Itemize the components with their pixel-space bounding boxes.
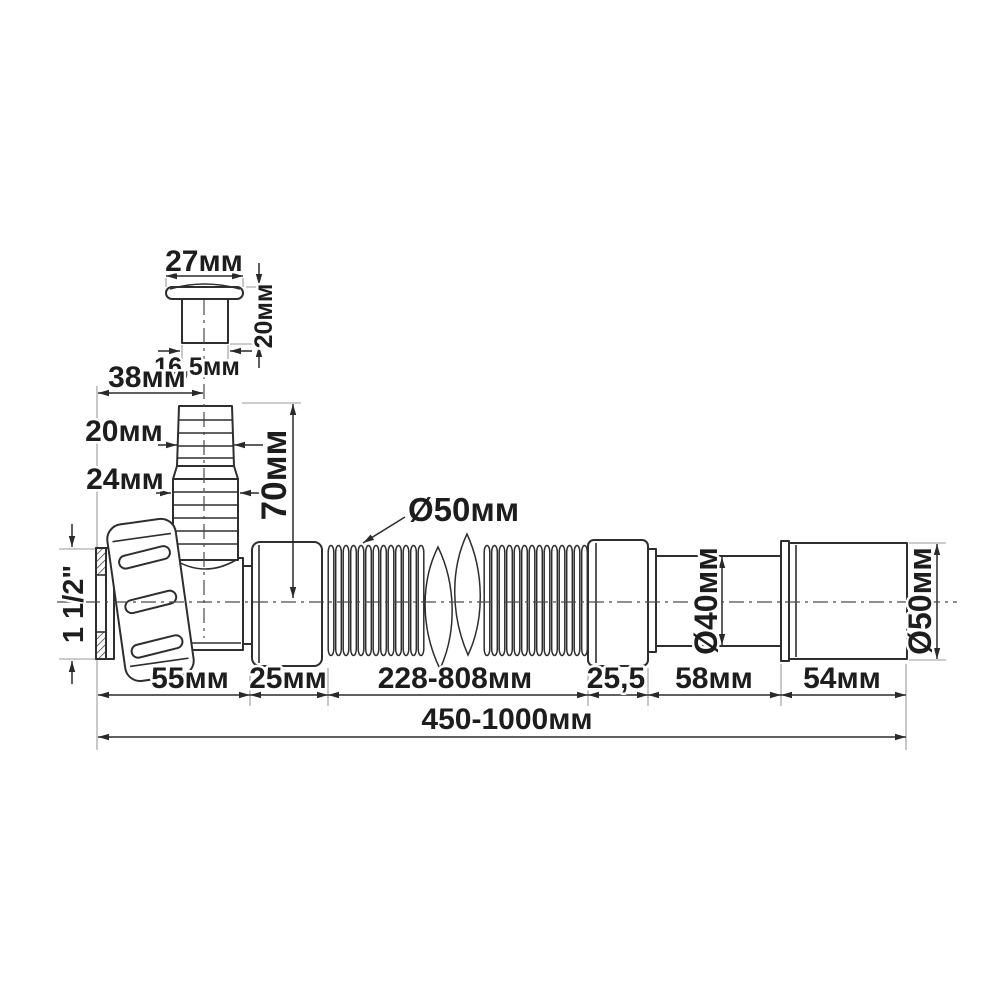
cap-width-label: 27мм [165,245,243,278]
end-pipe-diameter-label: Ø50мм [902,547,938,655]
drawing-canvas: 27мм 20мм 16,5мм 38мм 20мм 24мм 70мм 1 1… [0,0,1000,1000]
cap-height-label: 20мм [250,284,278,349]
chain-inlet-nut-label: 55мм [151,662,229,695]
chain-second-collar-label: 25,5 [587,662,645,695]
pipe-break-symbol [455,534,481,655]
lower-barb-label: 24мм [86,463,164,496]
inlet-thread-label: 1 1/2" [58,565,90,643]
upper-barb-label: 20мм [85,415,163,448]
chain-corrugation-label: 228-808мм [378,662,532,695]
branch-height-label: 70мм [255,430,294,521]
branch-barb-fitting [173,406,238,569]
chain-first-collar-label: 25мм [249,662,327,695]
leader-line [363,517,405,543]
branch-offset-label: 38мм [108,361,186,394]
corrugation-diameter-label: Ø50мм [408,491,519,528]
first-collar [243,542,322,666]
pipe-break-symbol [425,547,452,669]
second-collar [588,540,656,666]
end-pipe [781,541,907,661]
technical-drawing: 27мм 20мм 16,5мм 38мм 20мм 24мм 70мм 1 1… [0,0,1000,1000]
overall-length-label: 450-1000мм [421,703,592,736]
chain-mid-pipe-label: 58мм [675,662,753,695]
mid-pipe-diameter-label: Ø40мм [688,547,724,655]
chain-end-pipe-label: 54мм [803,662,881,695]
